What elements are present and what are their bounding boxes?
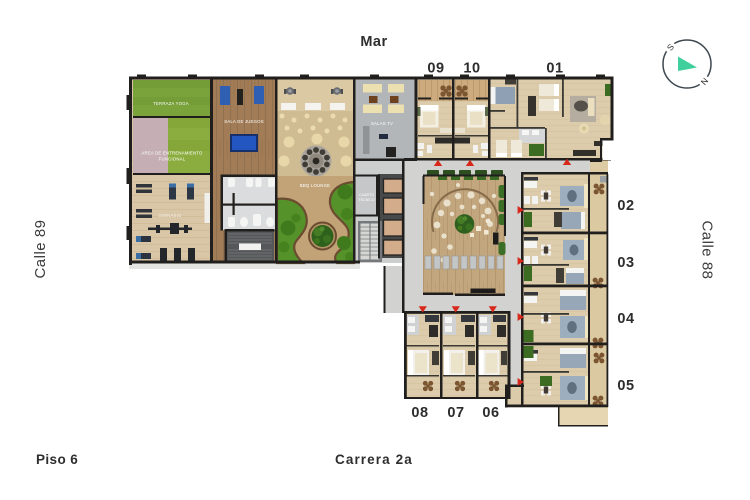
svg-text:TECNICO: TECNICO xyxy=(358,198,374,202)
svg-text:AREA DE ENTRENAMIENTO: AREA DE ENTRENAMIENTO xyxy=(141,151,203,156)
svg-text:07: 07 xyxy=(447,405,464,421)
svg-text:Calle 89: Calle 89 xyxy=(32,219,49,278)
svg-text:Piso 6: Piso 6 xyxy=(36,452,78,467)
svg-text:TERRAZA YOGA: TERRAZA YOGA xyxy=(153,101,189,106)
svg-text:CUARTO: CUARTO xyxy=(359,193,374,197)
svg-text:01: 01 xyxy=(546,61,563,77)
svg-text:SALAS TV: SALAS TV xyxy=(371,121,393,126)
svg-text:FUNCIONAL: FUNCIONAL xyxy=(159,157,186,162)
svg-text:Mar: Mar xyxy=(360,34,387,50)
svg-text:05: 05 xyxy=(617,378,634,394)
svg-text:06: 06 xyxy=(482,405,499,421)
svg-text:Calle 88: Calle 88 xyxy=(699,220,716,279)
svg-text:BBQ LOUNGE: BBQ LOUNGE xyxy=(300,183,330,188)
svg-text:03: 03 xyxy=(617,255,634,271)
svg-text:08: 08 xyxy=(411,405,428,421)
svg-text:SALA DE JUEGOS: SALA DE JUEGOS xyxy=(224,119,264,124)
svg-text:10: 10 xyxy=(463,61,480,77)
svg-text:GIMNASIO: GIMNASIO xyxy=(158,213,182,218)
svg-text:02: 02 xyxy=(617,198,634,214)
svg-text:04: 04 xyxy=(617,311,634,327)
svg-text:Carrera 2a: Carrera 2a xyxy=(335,452,413,467)
svg-text:09: 09 xyxy=(427,61,444,77)
